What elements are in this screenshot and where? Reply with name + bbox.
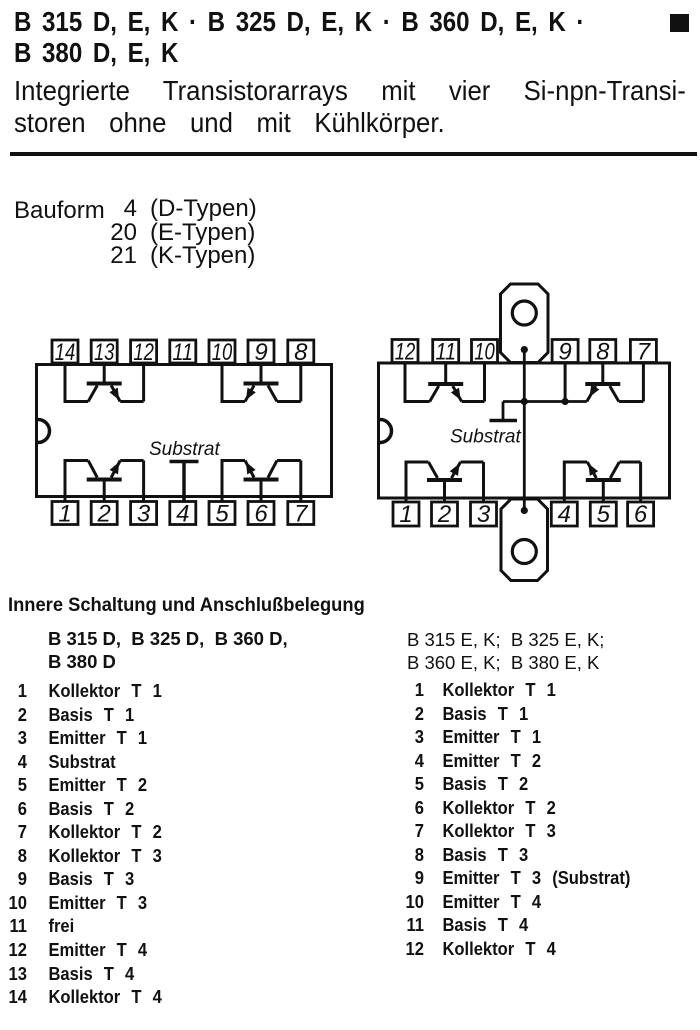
svg-text:10: 10 xyxy=(474,339,495,366)
svg-text:14: 14 xyxy=(55,339,76,366)
svg-text:Substrat: Substrat xyxy=(149,439,220,460)
svg-text:1: 1 xyxy=(58,501,71,528)
svg-text:9: 9 xyxy=(254,339,267,366)
svg-text:10: 10 xyxy=(212,339,233,366)
svg-text:4: 4 xyxy=(558,501,571,528)
svg-text:6: 6 xyxy=(254,501,268,528)
svg-text:8: 8 xyxy=(596,339,610,366)
svg-text:3: 3 xyxy=(477,501,491,528)
svg-text:7: 7 xyxy=(637,339,652,366)
svg-text:6: 6 xyxy=(634,501,648,528)
svg-text:11: 11 xyxy=(435,339,456,366)
svg-text:12: 12 xyxy=(395,339,416,366)
svg-text:3: 3 xyxy=(137,501,151,528)
svg-text:1: 1 xyxy=(399,501,412,528)
svg-text:Substrat: Substrat xyxy=(450,427,521,448)
svg-text:5: 5 xyxy=(597,501,611,528)
svg-text:9: 9 xyxy=(558,339,571,366)
svg-text:2: 2 xyxy=(437,501,451,528)
svg-text:11: 11 xyxy=(173,339,194,366)
svg-text:2: 2 xyxy=(97,501,111,528)
svg-text:4: 4 xyxy=(176,501,189,528)
svg-text:7: 7 xyxy=(294,501,309,528)
svg-text:5: 5 xyxy=(215,501,229,528)
svg-text:13: 13 xyxy=(94,339,115,366)
svg-text:8: 8 xyxy=(294,339,308,366)
svg-text:12: 12 xyxy=(133,339,154,366)
